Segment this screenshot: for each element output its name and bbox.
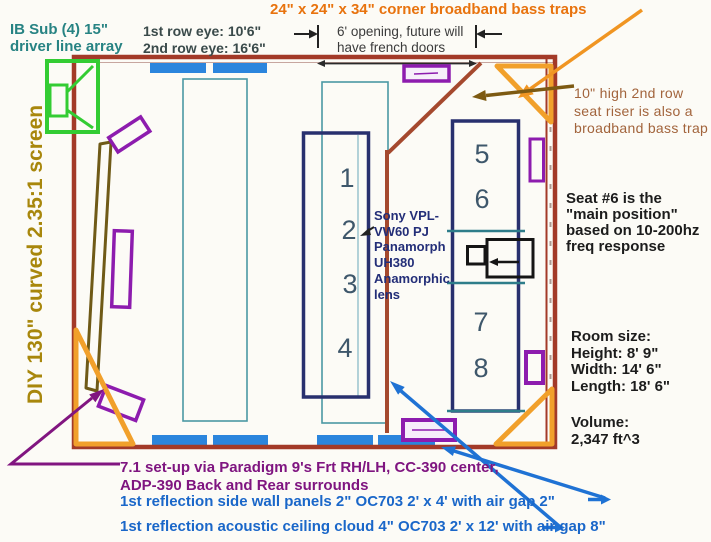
projector-label: Sony VPL- VW60 PJ Panamorph UH380 Anamor… [374, 208, 450, 302]
seat-1: 1 [334, 163, 360, 194]
opening-label-line1: 6' opening, future will [337, 24, 463, 40]
row1-eye-distance: 1st row eye: 10'6" [143, 23, 266, 40]
rear-surround-lower [526, 352, 543, 383]
wall-panel-top-2 [213, 63, 267, 73]
lens-arrow-head [489, 258, 498, 266]
bass-trap-arrow-shaft [530, 10, 642, 89]
main-position-line4: freq response [566, 239, 699, 255]
wall-panels-label: 1st reflection side wall panels 2" OC703… [120, 493, 555, 510]
bass-trap-bottom-right [496, 389, 552, 444]
ib-sub-horn-bottom [67, 110, 93, 128]
projector-line4: UH380 [374, 255, 450, 271]
opening-label: 6' opening, future will have french door… [337, 24, 463, 56]
ib-sub-horn-top [67, 66, 93, 92]
side-surround-top-mark [414, 73, 438, 74]
projector-line1: Sony VPL- [374, 208, 450, 224]
seat-3: 3 [337, 269, 363, 300]
projector-line5: Anamorphic [374, 271, 450, 287]
volume-label: Volume: 2,347 ft^3 [571, 415, 640, 448]
ib-sub-driver [50, 85, 67, 116]
opening-label-line2: have french doors [337, 40, 463, 56]
riser-arrow-head [472, 90, 487, 101]
room-length: Length: 18' 6" [571, 379, 670, 396]
ceiling-cloud-row1 [183, 79, 247, 421]
volume-header: Volume: [571, 415, 640, 432]
center-speaker [112, 231, 133, 308]
riser-label-line2: seat riser is also a [574, 103, 708, 121]
opening-arrow-right-head [476, 30, 485, 39]
home-theater-floor-plan: IB Sub (4) 15" driver line array 1st row… [0, 0, 711, 542]
projector-box [487, 240, 533, 278]
wall-panel-bottom-1 [152, 435, 207, 446]
riser-label-line3: broadband bass trap [574, 120, 708, 138]
rear-surround-upper [530, 139, 544, 181]
seat-8: 8 [468, 353, 494, 384]
projector-line2: VW60 PJ [374, 224, 450, 240]
main-position-line2: "main position" [566, 207, 699, 223]
wall-panel-arrow-head [441, 446, 456, 456]
bass-trap-bottom-left [76, 330, 133, 444]
wall-panel-top-1 [150, 63, 206, 73]
main-position-line1: Seat #6 is the [566, 191, 699, 207]
ib-sub-label-line1: IB Sub (4) 15" [10, 21, 123, 38]
anamorphic-lens-box [468, 247, 486, 265]
room-height: Height: 8' 9" [571, 346, 670, 363]
front-speaker-right [109, 117, 150, 152]
riser-label: 10" high 2nd row seat riser is also a br… [574, 85, 708, 138]
seat-4: 4 [332, 333, 358, 364]
opening-span-head-left [317, 60, 325, 67]
wall-panel-bottom-2 [213, 435, 268, 446]
room-width: Width: 14' 6" [571, 362, 670, 379]
riser-label-line1: 10" high 2nd row [574, 85, 708, 103]
seat-7: 7 [468, 307, 494, 338]
projector-line6: lens [374, 287, 450, 303]
room-size-header: Room size: [571, 329, 670, 346]
room-walls [74, 57, 555, 447]
seat-6: 6 [469, 184, 495, 215]
wall-panel-bottom-3 [317, 435, 373, 446]
corner-bass-traps-label: 24" x 24" x 34" corner broadband bass tr… [270, 1, 586, 18]
row-eye-distances: 1st row eye: 10'6" 2nd row eye: 16'6" [143, 23, 266, 57]
seat-5: 5 [469, 139, 495, 170]
screen-label: DIY 130" curved 2.35:1 screen [24, 68, 48, 404]
ceiling-cloud-label: 1st reflection acoustic ceiling cloud 4"… [120, 518, 606, 535]
surround-setup-label: 7.1 set-up via Paradigm 9's Frt RH/LH, C… [120, 459, 499, 494]
opening-arrow-left-head [309, 30, 318, 39]
surround-setup-line1: 7.1 set-up via Paradigm 9's Frt RH/LH, C… [120, 459, 499, 477]
volume-value: 2,347 ft^3 [571, 432, 640, 449]
surround-setup-line2: ADP-390 Back and Rear surrounds [120, 477, 499, 495]
main-position-label: Seat #6 is the "main position" based on … [566, 191, 699, 255]
seat-2: 2 [336, 215, 362, 246]
room-size-label: Room size: Height: 8' 9" Width: 14' 6" L… [571, 329, 670, 395]
main-position-line3: based on 10-200hz [566, 223, 699, 239]
projector-line3: Panamorph [374, 239, 450, 255]
ib-sub-label-line2: driver line array [10, 38, 123, 55]
row2-eye-distance: 2nd row eye: 16'6" [143, 40, 266, 57]
ib-sub-label: IB Sub (4) 15" driver line array [10, 21, 123, 55]
